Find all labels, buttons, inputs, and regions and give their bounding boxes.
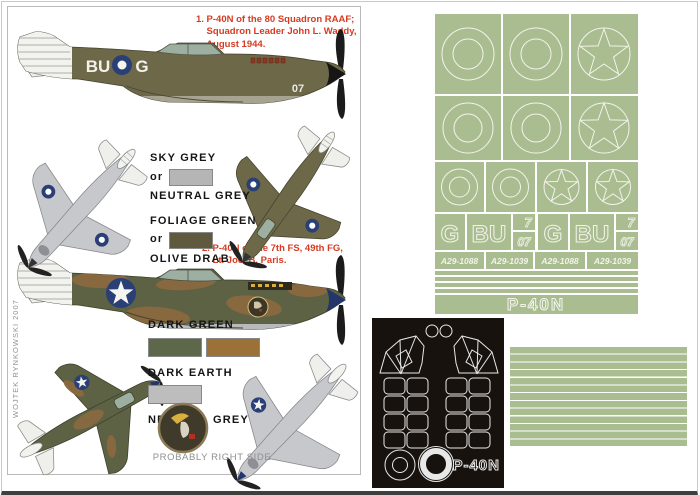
mask-roundel-small — [435, 162, 484, 212]
mask-roundel-medium — [503, 96, 569, 160]
mask-roundel-large — [503, 14, 569, 94]
mask-roundel-medium — [435, 96, 501, 160]
green-sheet-title-band: P-40N — [435, 295, 638, 314]
black-sheet-title: P-40N — [452, 457, 500, 474]
number-07-outline: 07 — [517, 235, 532, 249]
letter-G-outline: G — [544, 221, 563, 248]
mask-letters-BU: BU — [570, 214, 614, 250]
swatch-olive-drab — [169, 232, 213, 249]
mask-roundel-small — [486, 162, 535, 212]
white-tail — [8, 24, 72, 124]
paint-guide-top: SKY GREY or NEUTRAL GREY FOLIAGE GREEN o… — [150, 150, 257, 269]
stripe-mask-panel — [510, 347, 687, 447]
mask-serial: A29-1088 — [535, 252, 585, 269]
mask-star-medium — [571, 96, 638, 160]
canopy — [158, 270, 222, 281]
paint-label-olive-drab: OLIVE DRAB — [150, 251, 257, 269]
raaf-roundel-center — [118, 61, 127, 70]
swatch-neutral-grey — [169, 169, 213, 186]
paint-label-sky-grey: SKY GREY — [150, 150, 257, 168]
black-canopy-mask-sheet: P-40N — [372, 318, 504, 488]
nose-art-red-flag — [189, 434, 195, 439]
mask-roundel-large — [435, 14, 501, 94]
number-07-outline: 07 — [620, 235, 635, 249]
or-text: or — [150, 169, 163, 187]
mask-star-large — [571, 14, 638, 94]
probably-right-side-note: PROBABLY RIGHT SIDE — [142, 452, 282, 463]
swatch-dark-green — [148, 338, 202, 357]
number-7-outline: 7 — [627, 215, 635, 230]
serial-text: A29-1039 — [490, 256, 529, 266]
mask-serial: A29-1088 — [435, 252, 484, 269]
nose-art-disc — [248, 297, 268, 317]
serial-text: A29-1088 — [540, 256, 579, 266]
paint-label-foliage-green: FOLIAGE GREEN — [150, 213, 257, 231]
green-sheet-title: P-40N — [507, 295, 565, 314]
paint-label-dark-earth: DARK EARTH — [148, 365, 260, 383]
strip-mask — [435, 271, 638, 275]
letters-BU-outline: BU — [472, 221, 507, 248]
mask-letter-G: G — [435, 214, 465, 250]
mask-star-small — [537, 162, 586, 212]
mask-number-07: 07 — [513, 232, 535, 250]
or-text: or — [150, 231, 163, 249]
letters-BU-outline: BU — [575, 221, 610, 248]
mask-letter-G: G — [538, 214, 568, 250]
letter-G-outline: G — [441, 221, 460, 248]
mask-letters-BU: BU — [467, 214, 511, 250]
mask-number-7: 7 — [616, 214, 638, 230]
strip-mask — [435, 277, 638, 281]
mask-star-small — [588, 162, 638, 212]
propeller-blade-upper — [336, 29, 345, 69]
mask-number-07: 07 — [616, 232, 638, 250]
mask-serial: A29-1039 — [486, 252, 533, 269]
propeller-blade-upper — [336, 255, 345, 295]
mask-serial: A29-1039 — [587, 252, 638, 269]
number-7-outline: 7 — [524, 215, 532, 230]
code-letters-BU: BU — [86, 57, 111, 76]
serial-text: A29-1088 — [440, 256, 479, 266]
paint-label-dark-green: DARK GREEN — [148, 317, 260, 335]
nose-art-emblem — [157, 402, 209, 454]
canopy — [158, 44, 222, 55]
code-letter-G: G — [135, 57, 148, 76]
serial-text: A29-1039 — [593, 256, 632, 266]
decal-instruction-sheet: WOJTEK RYNKOWSKI 2007 1. P-40N of the 80… — [0, 0, 700, 495]
mask-number-7: 7 — [513, 214, 535, 230]
us-star-insignia — [106, 278, 136, 308]
strip-mask — [435, 283, 638, 287]
paint-label-neutral-grey: NEUTRAL GREY — [150, 188, 257, 206]
strip-mask — [435, 289, 638, 293]
green-mask-sheet: G BU 7 07 G BU 7 07 A29-1088 A29-1039 — [435, 14, 638, 314]
swatch-dark-earth — [206, 338, 260, 357]
